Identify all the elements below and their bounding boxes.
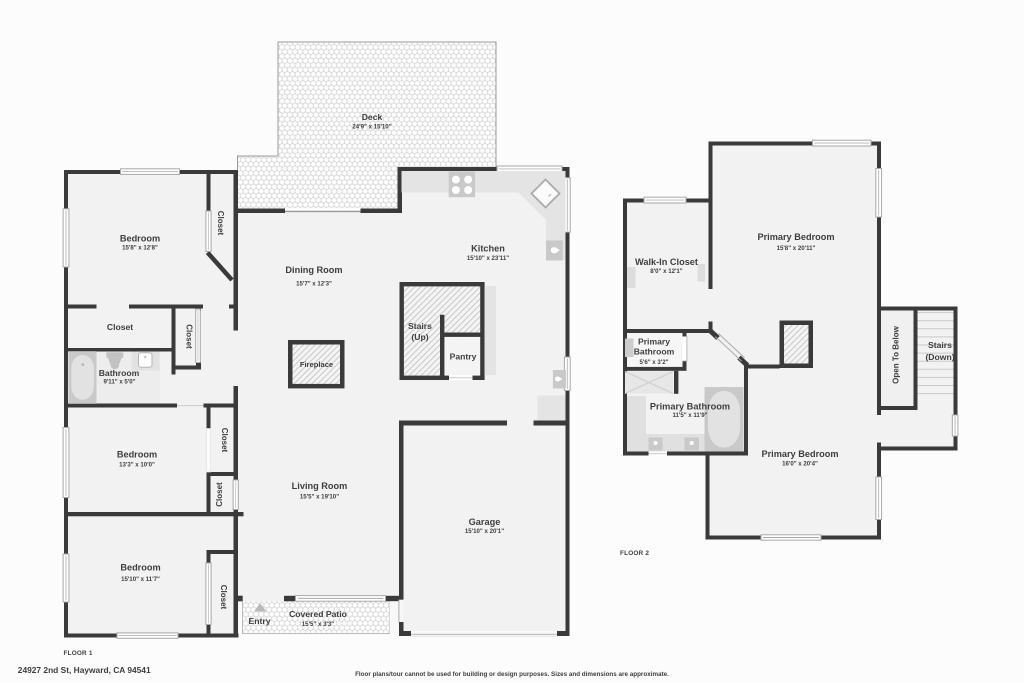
svg-text:15'8" x 20'11": 15'8" x 20'11" [777, 245, 816, 252]
svg-text:Garage: Garage [469, 517, 501, 527]
svg-text:Fireplace: Fireplace [300, 360, 333, 369]
svg-text:Primary: Primary [638, 337, 670, 347]
svg-text:Living Room: Living Room [292, 481, 348, 491]
svg-text:Bedroom: Bedroom [120, 563, 160, 573]
svg-text:15'10" x 11'7": 15'10" x 11'7" [121, 576, 160, 583]
svg-text:Dining Room: Dining Room [285, 265, 342, 275]
svg-text:Kitchen: Kitchen [471, 244, 505, 254]
svg-text:24'9" x 15'10": 24'9" x 15'10" [352, 124, 391, 131]
svg-text:Stairs: Stairs [408, 321, 432, 331]
svg-text:15'5" x 19'10": 15'5" x 19'10" [300, 493, 339, 500]
svg-text:15'7" x 12'3": 15'7" x 12'3" [296, 281, 332, 288]
svg-text:Bathroom: Bathroom [99, 368, 140, 378]
svg-text:Primary Bedroom: Primary Bedroom [757, 232, 834, 242]
svg-text:13'3" x 10'0": 13'3" x 10'0" [119, 461, 155, 468]
svg-text:15'10" x 20'1": 15'10" x 20'1" [465, 528, 504, 535]
svg-text:Closet: Closet [216, 211, 225, 236]
svg-text:16'0" x 20'4": 16'0" x 20'4" [782, 460, 818, 467]
svg-text:Bedroom: Bedroom [117, 450, 157, 460]
svg-text:Walk-In Closet: Walk-In Closet [635, 257, 698, 267]
svg-text:15'8" x 12'8": 15'8" x 12'8" [122, 244, 158, 251]
svg-text:Bathroom: Bathroom [634, 347, 675, 357]
svg-text:5'6" x 3'2": 5'6" x 3'2" [639, 359, 668, 366]
svg-text:15'5" x 3'3": 15'5" x 3'3" [302, 621, 335, 628]
svg-text:(Up): (Up) [411, 332, 428, 342]
svg-text:Primary Bedroom: Primary Bedroom [761, 449, 838, 459]
svg-text:Closet: Closet [185, 324, 194, 349]
svg-text:Entry: Entry [249, 616, 271, 626]
svg-text:Open To Below: Open To Below [891, 325, 900, 383]
svg-text:Pantry: Pantry [450, 352, 477, 362]
svg-text:FLOOR 1: FLOOR 1 [64, 650, 93, 657]
svg-text:15'10" x 23'11": 15'10" x 23'11" [467, 255, 509, 262]
svg-text:9'11" x 5'0": 9'11" x 5'0" [103, 379, 135, 386]
svg-text:Stairs: Stairs [928, 340, 952, 350]
svg-text:Primary Bathroom: Primary Bathroom [650, 402, 730, 412]
svg-text:8'0" x 12'1": 8'0" x 12'1" [650, 268, 683, 275]
svg-text:Closet: Closet [220, 428, 229, 453]
svg-text:11'5" x 11'9": 11'5" x 11'9" [672, 412, 707, 419]
svg-text:Closet: Closet [219, 585, 228, 610]
svg-text:Deck: Deck [362, 112, 383, 122]
svg-text:(Down): (Down) [925, 352, 954, 362]
svg-text:Floor plans/tour cannot be use: Floor plans/tour cannot be used for buil… [355, 671, 669, 678]
svg-text:Closet: Closet [107, 322, 133, 332]
svg-text:Closet: Closet [215, 482, 224, 507]
svg-text:Covered Patio: Covered Patio [289, 609, 347, 619]
svg-text:FLOOR 2: FLOOR 2 [620, 550, 649, 557]
svg-text:24927 2nd St, Hayward, CA 9454: 24927 2nd St, Hayward, CA 94541 [18, 665, 151, 675]
svg-text:Bedroom: Bedroom [120, 234, 160, 244]
